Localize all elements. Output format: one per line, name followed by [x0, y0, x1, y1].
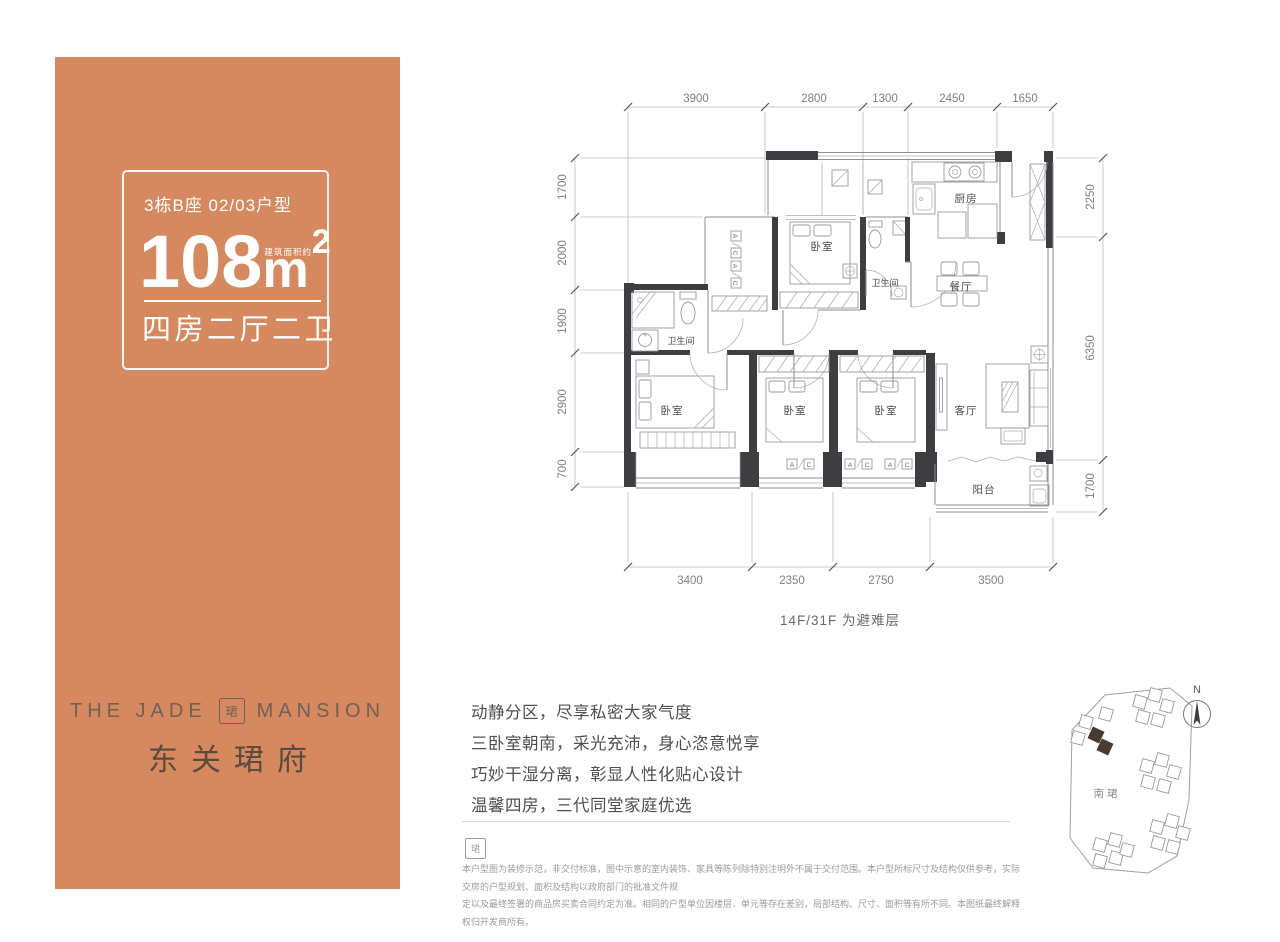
ac-mark: A C [845, 459, 872, 469]
chair-icon [963, 262, 979, 275]
bedroom-top: 卧室 [772, 216, 866, 346]
ac-mark: A C [787, 459, 814, 469]
dim-bottom-1: 3400 [677, 575, 703, 587]
logo-en-left: THE JADE [70, 700, 207, 723]
dim-bottom-4: 3500 [978, 575, 1004, 587]
bath-top-label: 卫生间 [871, 277, 898, 288]
shaft-icon [1030, 164, 1045, 240]
svg-text:C: C [731, 281, 738, 286]
washer-icon [1030, 466, 1047, 481]
bed-icon [790, 222, 850, 284]
bathroom-top: 卫生间 [866, 217, 908, 299]
dim-left-5: 700 [557, 459, 569, 478]
toilet-icon [680, 292, 696, 324]
selling-point: 动静分区，尽享私密大家气度 [471, 698, 760, 729]
area-value: 108 [139, 225, 262, 299]
selling-point: 温馨四房，三代同堂家庭优选 [471, 791, 760, 822]
chair-icon [963, 293, 979, 306]
bedroom-door-arcs [690, 353, 893, 390]
shower-tray-icon [893, 221, 906, 235]
dimension-top: 3900 2800 1300 2450 1650 [624, 93, 1057, 283]
dimension-bottom: 3400 2350 2750 3500 [624, 492, 1057, 587]
brand-seal-icon: 珺 [219, 698, 245, 724]
unit-info-frame: 3栋B座 02/03户型 108建筑面积约m2 四房二厅二卫 [122, 170, 329, 370]
chair-icon [941, 293, 957, 306]
site-map: 南珺 N [1056, 670, 1234, 888]
logo-en-right: MANSION [257, 700, 385, 723]
dim-right-3: 1700 [1085, 473, 1097, 499]
area-superscript: 2 [312, 223, 331, 262]
dimension-right: 2250 6350 1700 [1056, 154, 1107, 516]
wardrobe-icon [640, 432, 735, 448]
bath-left-label: 卫生间 [667, 335, 694, 346]
ac-mark: A C [731, 261, 741, 288]
brand-panel: 3栋B座 02/03户型 108建筑面积约m2 四房二厅二卫 THE JADE … [55, 57, 400, 889]
dim-top-5: 1650 [1012, 93, 1038, 105]
refuge-floor-note: 14F/31F 为避难层 [780, 613, 900, 628]
kitchen-sink-icon [913, 184, 935, 214]
dim-left-1: 1700 [557, 174, 569, 200]
wardrobe-icon [840, 356, 924, 372]
svg-text:C: C [865, 462, 870, 469]
selling-point: 巧妙干湿分离，彰显人性化贴心设计 [471, 760, 760, 791]
disclaimer-line: 本户型图为装修示范，非交付标准，图中示意的室内装饰、家具等陈列除特别注明外不属于… [462, 861, 1020, 896]
balcony-label: 阳台 [973, 483, 996, 496]
dim-top-1: 3900 [683, 93, 709, 105]
bedroom-2-label: 卧室 [784, 404, 807, 417]
svg-text:C: C [731, 251, 738, 256]
north-label: N [1193, 684, 1201, 696]
svg-text:C: C [905, 462, 910, 469]
unit-label: 3栋B座 02/03户型 [144, 191, 292, 216]
floor-plan: 3900 2800 1300 2450 1650 3400 2350 2750 … [540, 75, 1140, 650]
logo-chinese: 东关珺府 [55, 735, 400, 779]
bed-icon [636, 376, 714, 428]
dim-bottom-3: 2750 [868, 575, 894, 587]
stool-inner [1004, 431, 1022, 441]
site-project-label: 南珺 [1094, 787, 1121, 800]
compass-needle [1194, 701, 1201, 725]
flyer: 3栋B座 02/03户型 108建筑面积约m2 四房二厅二卫 THE JADE … [0, 0, 1280, 942]
disclaimer: 本户型图为装修示范，非交付标准，图中示意的室内装饰、家具等陈列除特别注明外不属于… [462, 861, 1020, 931]
dim-top-3: 1300 [872, 93, 898, 105]
dim-right-1: 2250 [1085, 184, 1097, 210]
dim-left-2: 2000 [557, 240, 569, 266]
ac-mark: A C [885, 459, 912, 469]
selling-point: 三卧室朝南，采光充沛，身心恣意悦享 [471, 729, 760, 760]
svg-text:A: A [888, 462, 893, 469]
entry-door-arc [1012, 162, 1047, 197]
svg-text:A: A [731, 264, 738, 269]
logo-english: THE JADE 珺 MANSION [55, 698, 400, 724]
brand-logo: THE JADE 珺 MANSION 东关珺府 [55, 698, 400, 779]
svg-text:A: A [790, 462, 795, 469]
ac-mark: A C [731, 231, 741, 258]
shower-icon [632, 292, 674, 328]
svg-text:A: A [848, 462, 853, 469]
bathroom-left: 卫生间 [624, 284, 743, 353]
dim-top-2: 2800 [801, 93, 827, 105]
bedroom-3: 卧室 [840, 356, 924, 442]
laundry-sink-icon [1030, 485, 1049, 506]
dim-top-4: 2450 [939, 93, 965, 105]
living-label: 客厅 [955, 404, 978, 417]
dim-left-4: 2900 [557, 389, 569, 415]
counter [938, 212, 966, 238]
bay-windows [624, 452, 926, 488]
dining-label: 餐厅 [950, 280, 973, 293]
toilet-icon [869, 221, 882, 248]
ceiling-light-icon [1031, 346, 1048, 363]
dim-left-3: 1900 [557, 308, 569, 334]
svg-text:C: C [807, 462, 812, 469]
footer-seal-icon: 珺 [465, 838, 486, 859]
sink-icon [632, 330, 658, 351]
sofa-icon [1030, 370, 1048, 426]
stove-icon [944, 163, 984, 181]
area-figure: 108建筑面积约m2 [139, 225, 331, 299]
dim-bottom-2: 2350 [779, 575, 805, 587]
fridge-icon [968, 204, 997, 238]
wardrobe-icon [780, 292, 858, 308]
balcony: 阳台 [926, 452, 1053, 512]
bedroom-1: 卧室 [636, 360, 735, 448]
hall-closet-icon [712, 296, 767, 311]
selling-points: 动静分区，尽享私密大家气度 三卧室朝南，采光充沛，身心恣意悦享 巧妙干湿分离，彰… [471, 698, 760, 822]
bedroom-top-label: 卧室 [811, 240, 834, 253]
footer-divider [462, 821, 1010, 822]
bedroom-3-label: 卧室 [875, 404, 898, 417]
dim-right-2: 6350 [1085, 335, 1097, 361]
curtain-line [948, 457, 1036, 462]
stool-icon [1001, 428, 1025, 444]
divider-rule [144, 300, 321, 302]
area-note: 建筑面积约 [264, 246, 312, 258]
tv-cabinet-icon [936, 364, 947, 430]
nightstand-icon [636, 360, 649, 374]
svg-text:A: A [731, 234, 738, 239]
flue-strip [822, 158, 908, 215]
coffee-table-icon [1002, 382, 1018, 412]
layout-label: 四房二厅二卫 [142, 306, 337, 348]
living-room: 客厅 [936, 346, 1048, 444]
disclaimer-line: 定以及最终签署的商品房买卖合同约定为准。相同的户型单位因楼层、单元等存在差别，局… [462, 896, 1020, 931]
kitchen-label: 厨房 [955, 192, 978, 205]
bedroom-1-label: 卧室 [661, 404, 684, 417]
